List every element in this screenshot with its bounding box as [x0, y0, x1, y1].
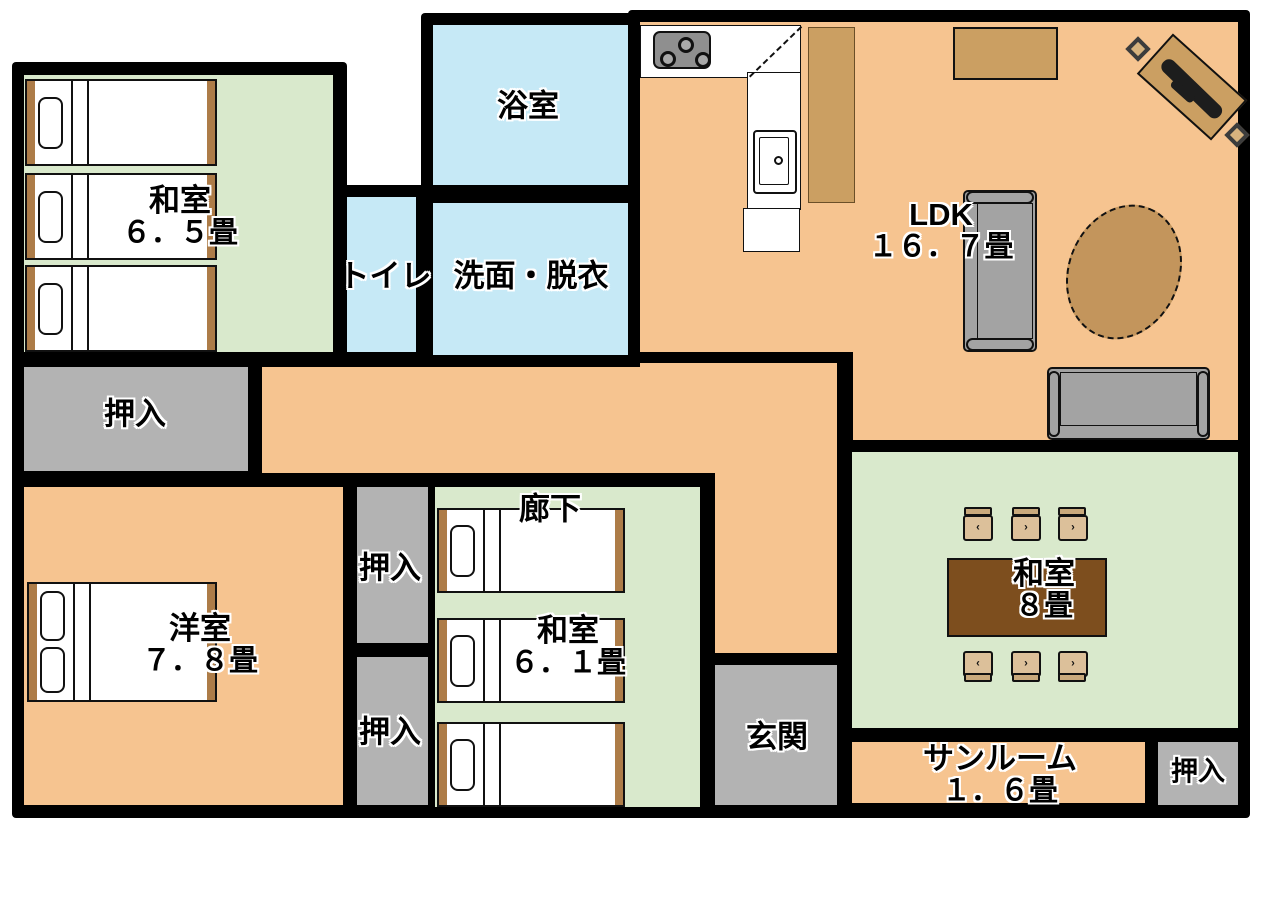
bed-pillow	[450, 525, 475, 577]
room-label-rouka: 廊下	[519, 493, 581, 526]
room-label-sunroom: サンルーム １．６畳	[923, 742, 1077, 808]
bed-headboard	[439, 620, 447, 701]
single-bed	[25, 79, 217, 166]
single-bed	[25, 265, 217, 352]
single-bed	[437, 722, 625, 807]
bed-headboard	[27, 81, 35, 164]
kitchen-cabinet	[808, 27, 855, 203]
sofa-armrest	[1048, 371, 1060, 437]
floor-chair-back	[964, 673, 992, 682]
room-label-oshiire-mid-top: 押入	[359, 552, 421, 585]
room-label-bath: 浴室	[497, 90, 559, 123]
bed-footboard	[207, 267, 215, 350]
corridor-floor-band	[262, 367, 640, 473]
bed-headboard	[27, 267, 35, 350]
faucet-icon	[774, 156, 783, 165]
bed-pillow	[38, 191, 63, 243]
bed-headboard	[439, 510, 447, 591]
room-label-washitsu-8: 和室 ８畳	[1013, 557, 1075, 623]
bed-pillow	[40, 647, 65, 693]
floor-cushion: ›	[1011, 515, 1041, 541]
bed-headboard	[27, 175, 35, 258]
corridor-floor-band2	[640, 363, 837, 473]
bed-headboard	[439, 724, 447, 805]
room-label-oshiire-left: 押入	[104, 398, 166, 431]
bed-headboard	[29, 584, 37, 700]
bed-footboard	[615, 724, 623, 805]
bed-footboard	[207, 81, 215, 164]
floor-plan: ‹ › › ‹ › › 和室 ６．５畳 浴室 トイレ 洗面・脱衣 LDK １６．…	[0, 0, 1280, 905]
sideboard	[953, 27, 1058, 80]
room-label-washitsu-6-5: 和室 ６．５畳	[122, 184, 238, 250]
floor-chair-back	[1058, 673, 1086, 682]
floor-chair-back	[1012, 673, 1040, 682]
bed-pillow	[450, 739, 475, 791]
burner-icon	[678, 37, 694, 53]
room-label-genkan: 玄関	[746, 721, 808, 754]
burner-icon	[695, 52, 711, 68]
room-label-oshiire-mid-bottom: 押入	[359, 716, 421, 749]
bed-footboard	[615, 510, 623, 591]
sofa-horizontal	[1047, 367, 1210, 440]
floor-cushion: ›	[1058, 515, 1088, 541]
bed-pillow	[38, 283, 63, 335]
stove-icon	[653, 31, 711, 69]
sofa-armrest	[966, 338, 1034, 351]
bed-pillow	[38, 97, 63, 149]
room-label-senmen: 洗面・脱衣	[454, 260, 609, 293]
room-label-toilet: トイレ	[339, 260, 432, 293]
bed-pillow	[40, 591, 65, 641]
sofa-armrest	[1197, 371, 1209, 437]
floor-cushion: ‹	[963, 515, 993, 541]
kitchen-counter-low	[743, 208, 800, 252]
sofa-seat	[1060, 372, 1197, 426]
kitchen-sink-icon	[753, 130, 797, 194]
bed-pillow	[450, 635, 475, 687]
room-label-washitsu-6-1: 和室 ６．１畳	[510, 614, 626, 680]
burner-icon	[660, 51, 676, 67]
room-label-oshiire-br: 押入	[1171, 756, 1225, 789]
room-label-ldk: LDK １６．７畳	[868, 198, 1013, 264]
room-label-yoshitsu: 洋室 ７．８畳	[142, 612, 258, 678]
corridor-floor-vertical	[715, 473, 837, 653]
